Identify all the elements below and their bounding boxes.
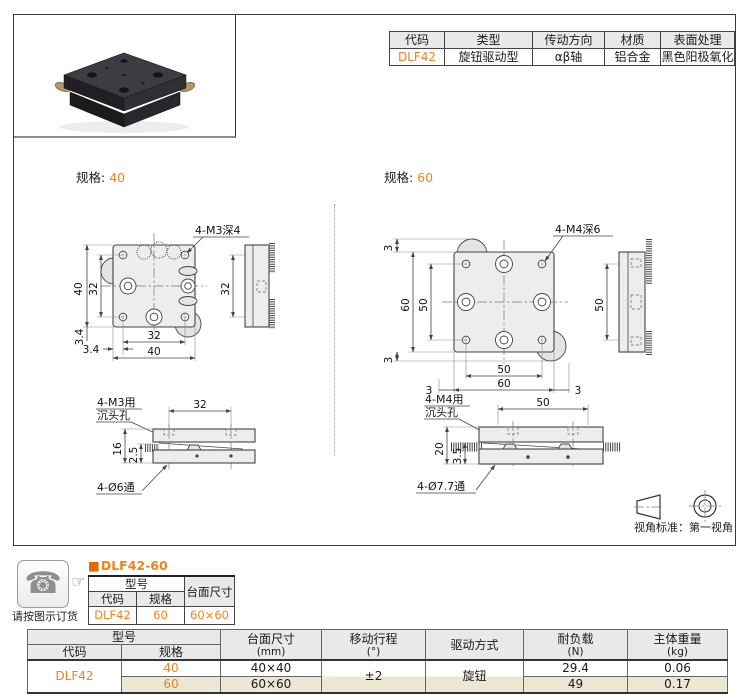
cell-size-60: 60×60 [221,677,322,694]
spec-header-spec: 规格 [122,645,221,661]
order-value-code: DLF42 [89,607,137,625]
dim-side-32: 32 [220,282,232,295]
cell-drive: 旋钮 [426,660,524,693]
spec40-label-value: 40 [109,170,125,185]
spec60-side-view: 50 [594,239,649,355]
dim-3right: 3 [575,385,582,397]
spec60-label-value: 60 [417,170,433,185]
order-header-row1: 型号 台面尺寸 [89,576,235,592]
dim-front-2-5: 2.5 [128,447,140,464]
cell-load-60: 49 [524,677,628,694]
dim-3top: 3 [383,245,395,252]
spec-header-weight-l1: 主体重量 [628,632,727,646]
callout-m4-cb2: 沉头孔 [425,406,458,419]
dim-50v: 50 [418,298,430,311]
spec-row-40: DLF42 40 40×40 ±2 旋钮 29.4 0.06 [28,660,728,677]
cell-spec-40: 40 [122,660,221,677]
order-value-row: DLF42 60 60×60 [89,607,235,625]
info-header-finish: 表面处理 [661,32,735,49]
cell-spec-60: 60 [122,677,221,694]
info-header-code: 代码 [390,32,445,49]
dim-front-16: 16 [112,442,124,456]
callout-o77: 4-Ø7.7通 [417,480,465,493]
dim-3bottom: 3 [383,357,395,364]
spec40-side-view: 32 [220,243,272,329]
order-value-size: 60×60 [185,607,235,625]
order-phone-box: ☎ [17,560,69,608]
callout-m4-cb1: 4-M4用 [425,393,463,406]
spec-header-size-l1: 台面尺寸 [221,632,321,646]
spec60-label: 规格:60 [384,167,433,186]
cell-size-40: 40×40 [221,660,322,677]
spec-header-drive: 驱动方式 [426,630,524,661]
spec-header-row1: 型号 台面尺寸 (mm) 移动行程 (°) 驱动方式 耐负载 (N) 主体重量 … [28,630,728,645]
spec60-label-text: 规格: [384,170,413,185]
info-value-type: 旋钮驱动型 [445,49,533,66]
order-header-model: 型号 [89,576,185,592]
order-header-code: 代码 [89,592,137,607]
dim-side-50: 50 [594,298,606,311]
catalog-page: 代码 类型 传动方向 材质 表面处理 DLF42 旋钮驱动型 αβ轴 铝合金 黑… [0,0,748,700]
info-header-direction: 传动方向 [533,32,605,49]
product-photo-box [14,15,236,138]
dim-32h: 32 [147,330,160,342]
spec60-top-view: 3 60 50 3 50 60 3 3 4-M4深6 [383,223,613,397]
phone-icon: ☎ [24,566,61,601]
spec-header-size-l2: (mm) [221,646,321,658]
info-value-material: 铝合金 [605,49,661,66]
spec-header-load: 耐负载 (N) [524,630,628,661]
callout-m4: 4-M4深6 [555,223,600,236]
info-header-material: 材质 [605,32,661,49]
order-title: ■DLF42-60 [88,558,168,573]
order-header-spec: 规格 [137,592,185,607]
content-frame: 代码 类型 传动方向 材质 表面处理 DLF42 旋钮驱动型 αβ轴 铝合金 黑… [13,14,736,546]
callout-m3: 4-M3深4 [195,224,240,237]
drawing-spec60: 3 60 50 3 50 60 3 3 4-M4深6 [373,193,683,515]
first-angle-trapezoid-icon [634,493,664,521]
projection-caption: 视角标准：第一视角 [634,519,733,535]
info-value-row: DLF42 旋钮驱动型 αβ轴 铝合金 黑色阳极氧化 [390,49,735,66]
cell-travel: ±2 [322,660,426,693]
dim-32v: 32 [88,282,100,295]
product-photo [14,15,235,136]
info-value-code: DLF42 [390,49,445,66]
spec-header-travel-l1: 移动行程 [322,632,425,646]
cell-weight-40: 0.06 [628,660,728,677]
callout-m3-cb1: 4-M3用 [97,396,135,409]
spec-header-size: 台面尺寸 (mm) [221,630,322,661]
dim-60h: 60 [497,378,510,390]
spec-table: 型号 台面尺寸 (mm) 移动行程 (°) 驱动方式 耐负载 (N) 主体重量 … [27,629,728,694]
dim-60v: 60 [400,298,412,311]
cell-code: DLF42 [28,660,122,693]
spec40-front-view: 4-M3用 沉头孔 32 16 [96,396,255,494]
spec60-front-view: 4-M4用 沉头孔 50 2 [416,393,621,493]
dim-front-3-5: 3.5 [452,448,464,465]
spec40-label-text: 规格: [76,170,105,185]
dim-40v: 40 [73,282,85,295]
first-angle-target-icon [688,489,722,523]
spec-header-weight-l2: (kg) [628,646,727,658]
spec-header-load-l1: 耐负载 [524,632,627,646]
order-title-bullet: ■ [88,558,100,573]
spec-header-weight: 主体重量 (kg) [628,630,728,661]
pointing-hand-icon: ☞ [71,572,85,591]
order-note: 请按图示订货 [12,608,78,624]
dim-front-50: 50 [536,397,549,409]
order-header-size: 台面尺寸 [185,576,235,607]
callout-m3-cb2: 沉头孔 [97,409,130,422]
info-header-row: 代码 类型 传动方向 材质 表面处理 [390,32,735,49]
info-value-direction: αβ轴 [533,49,605,66]
dim-front-32: 32 [193,399,206,411]
spec-header-code: 代码 [28,645,122,661]
info-header-type: 类型 [445,32,533,49]
order-title-text: DLF42-60 [101,558,168,573]
dim-3-4h: 3.4 [83,344,100,356]
spec-header-model: 型号 [28,630,221,645]
spec40-label: 规格:40 [76,167,125,186]
cell-weight-60: 0.17 [628,677,728,694]
spec-header-travel-l2: (°) [322,646,425,658]
order-value-spec: 60 [137,607,185,625]
info-value-finish: 黑色阳极氧化 [661,49,735,66]
dim-40h: 40 [147,346,160,358]
spec-header-travel: 移动行程 (°) [322,630,426,661]
spec-header-load-l2: (N) [524,646,627,658]
dim-3-4v: 3.4 [74,328,86,345]
dim-front-20: 20 [434,442,446,455]
dim-50h: 50 [497,364,510,376]
cell-load-40: 29.4 [524,660,628,677]
callout-o6: 4-Ø6通 [97,481,135,494]
drawing-spec40: 40 32 3.4 3.4 32 40 4-M3深4 [47,193,335,515]
order-table: 型号 台面尺寸 代码 规格 DLF42 60 60×60 [88,575,235,625]
product-info-table: 代码 类型 传动方向 材质 表面处理 DLF42 旋钮驱动型 αβ轴 铝合金 黑… [389,31,735,66]
